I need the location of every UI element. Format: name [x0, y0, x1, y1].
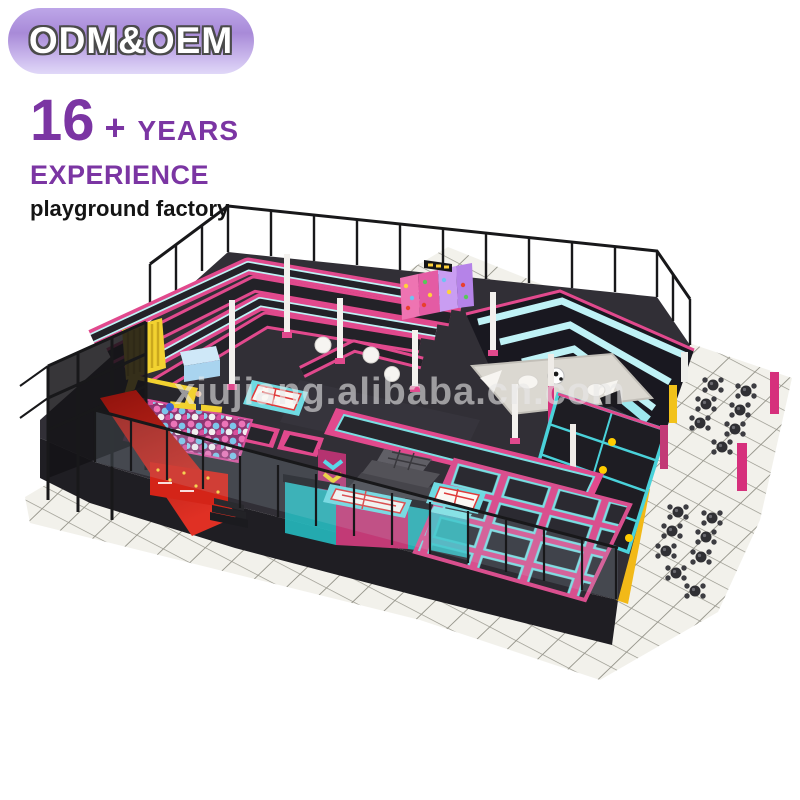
watermark: xiujiang.alibaba.cn.com [174, 371, 626, 413]
trampoline-park-illustration: xiujiang.alibaba.cn.com [0, 0, 800, 800]
